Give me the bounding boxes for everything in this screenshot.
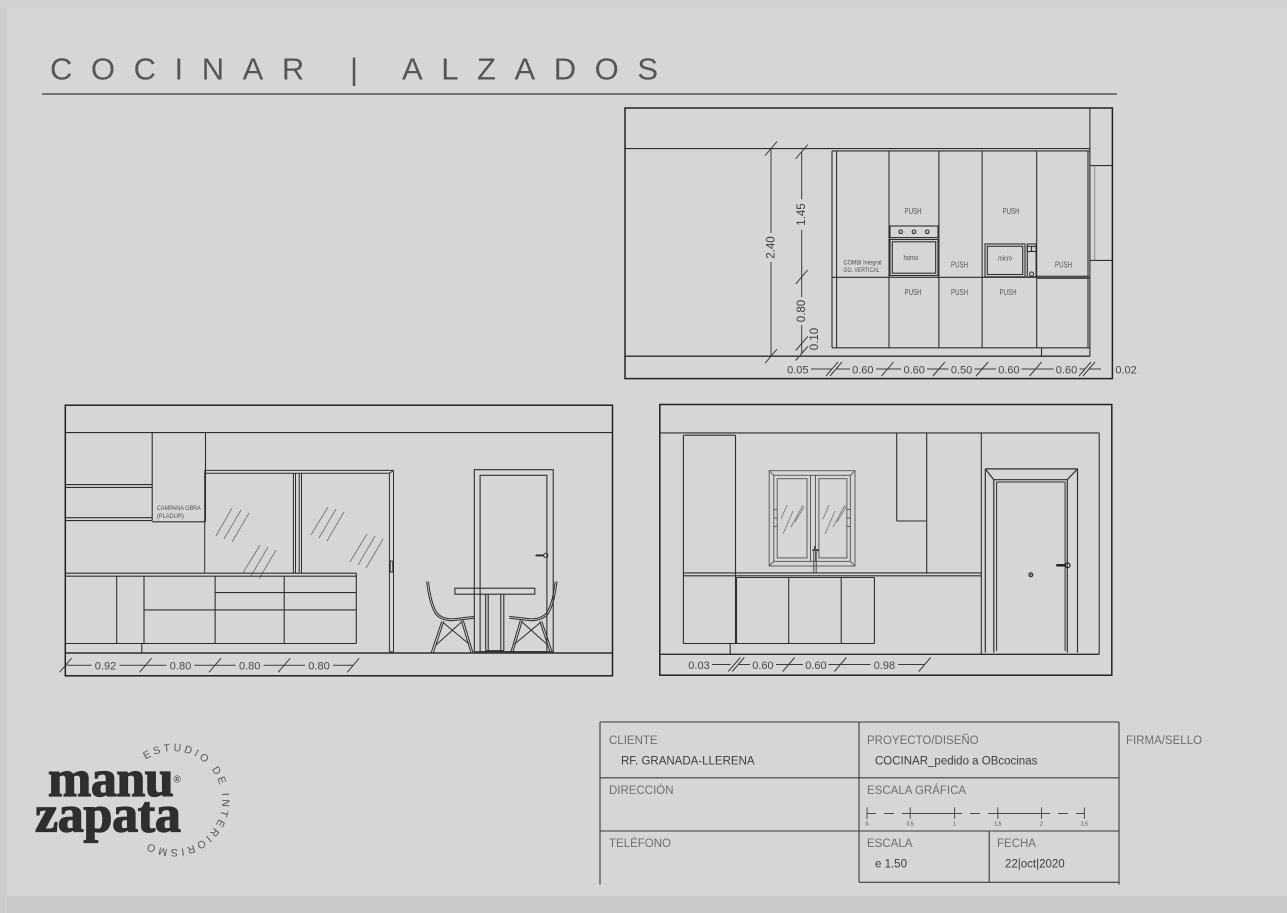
svg-text:FECHA: FECHA: [997, 838, 1036, 850]
svg-text:1,5: 1,5: [994, 822, 1001, 828]
svg-text:micro: micro: [998, 256, 1012, 263]
svg-text:0.92: 0.92: [95, 661, 116, 673]
svg-text:GO. VERTICAL: GO. VERTICAL: [844, 268, 881, 274]
svg-text:COCINAR | ALZADOS: COCINAR | ALZADOS: [50, 52, 677, 87]
svg-text:22|oct|2020: 22|oct|2020: [1005, 859, 1065, 871]
svg-text:zapata: zapata: [35, 787, 181, 844]
svg-text:0.05: 0.05: [787, 365, 808, 377]
svg-text:2,5: 2,5: [1081, 822, 1088, 828]
svg-text:2.40: 2.40: [766, 236, 778, 258]
svg-text:ESCALA: ESCALA: [867, 838, 913, 850]
svg-text:0.60: 0.60: [805, 660, 826, 672]
svg-text:0.80: 0.80: [308, 661, 329, 673]
svg-text:PROYECTO/DISEÑO: PROYECTO/DISEÑO: [867, 734, 979, 747]
svg-text:DIRECCIÓN: DIRECCIÓN: [609, 784, 674, 797]
svg-text:0.60: 0.60: [903, 365, 924, 377]
svg-text:0,5: 0,5: [907, 822, 914, 828]
svg-text:0.80: 0.80: [170, 661, 191, 673]
svg-text:FIRMA/SELLO: FIRMA/SELLO: [1126, 735, 1202, 747]
svg-text:0.10: 0.10: [809, 328, 821, 350]
svg-text:TELÉFONO: TELÉFONO: [609, 837, 671, 850]
svg-text:0.98: 0.98: [874, 660, 895, 672]
svg-text:COCINAR_pedido a OBcocinas: COCINAR_pedido a OBcocinas: [875, 756, 1038, 768]
svg-text:1: 1: [953, 822, 956, 828]
svg-text:0.60: 0.60: [752, 660, 773, 672]
svg-text:PUSH: PUSH: [1003, 207, 1020, 216]
svg-text:0.60: 0.60: [852, 365, 873, 377]
svg-text:PUSH: PUSH: [905, 288, 922, 297]
svg-text:®: ®: [174, 775, 182, 786]
svg-text:RF. GRANADA-LLERENA: RF. GRANADA-LLERENA: [621, 756, 755, 768]
svg-text:0.80: 0.80: [239, 661, 260, 673]
svg-text:COMBI Integral: COMBI Integral: [844, 261, 882, 267]
svg-text:0.80: 0.80: [796, 300, 808, 322]
svg-text:0: 0: [866, 822, 869, 828]
svg-text:0.60: 0.60: [1056, 365, 1077, 377]
svg-text:0.02: 0.02: [1115, 365, 1136, 377]
svg-text:0.03: 0.03: [688, 660, 709, 672]
svg-text:(PLADUR): (PLADUR): [157, 514, 184, 520]
svg-text:ESCALA GRÁFICA: ESCALA GRÁFICA: [867, 784, 966, 797]
svg-text:PUSH: PUSH: [905, 207, 922, 216]
svg-text:horno: horno: [904, 255, 919, 262]
svg-text:1.45: 1.45: [796, 203, 808, 225]
svg-text:PUSH: PUSH: [1000, 288, 1017, 297]
svg-text:2: 2: [1040, 822, 1043, 828]
svg-text:0.60: 0.60: [998, 365, 1019, 377]
svg-text:CAMPANA OBRA: CAMPANA OBRA: [157, 506, 201, 512]
svg-text:PUSH: PUSH: [1055, 261, 1072, 270]
svg-text:CLIENTE: CLIENTE: [609, 735, 658, 747]
svg-text:PUSH: PUSH: [951, 288, 968, 297]
svg-text:PUSH: PUSH: [951, 261, 968, 270]
svg-text:0.50: 0.50: [951, 365, 972, 377]
svg-text:e 1.50: e 1.50: [875, 859, 907, 871]
